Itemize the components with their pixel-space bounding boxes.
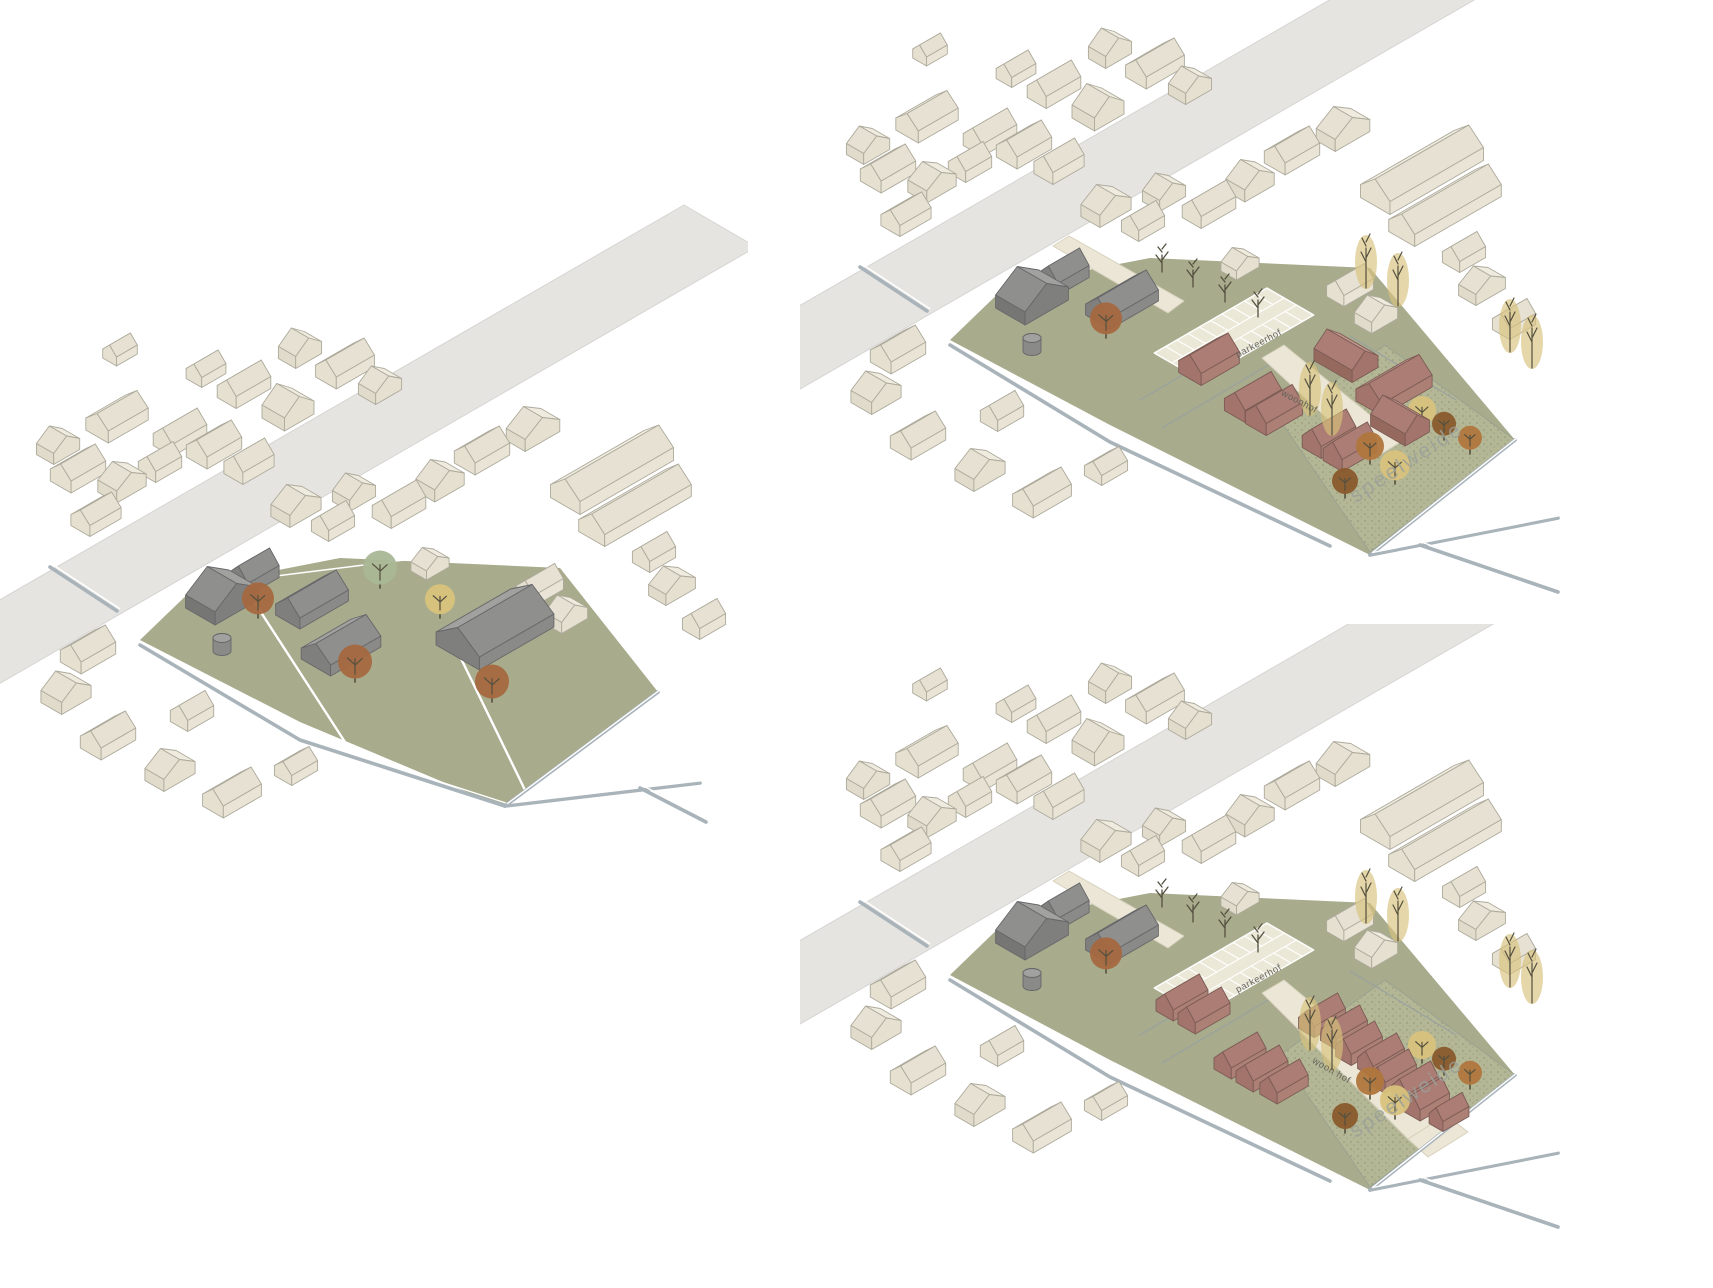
silo [213, 634, 231, 656]
context-building [996, 50, 1036, 88]
context-building [80, 711, 135, 760]
ditch-edge [643, 786, 709, 820]
poplar-tree [1387, 887, 1409, 942]
context-building [1264, 126, 1319, 175]
context-building [1316, 107, 1370, 152]
context-building [881, 192, 931, 237]
context-building [506, 407, 560, 452]
context-building [890, 1046, 945, 1095]
context-building [41, 671, 91, 715]
context-building [372, 480, 426, 529]
poplar-tree [1355, 234, 1377, 289]
context-building [186, 350, 226, 388]
context-building [1013, 467, 1072, 518]
poplar-tree [1387, 252, 1409, 307]
silo-top [1023, 969, 1041, 978]
site-ditch [1420, 1180, 1558, 1227]
site-diagrams: parkeerhofwoonhofspeelweideparkeerhofwoo… [0, 0, 1713, 1288]
context-building [649, 566, 696, 606]
ditch-edge [1423, 543, 1561, 590]
context-building [1084, 1082, 1127, 1121]
site-diagrams-page: parkeerhofwoonhofspeelweideparkeerhofwoo… [0, 0, 1713, 1288]
ditch-edge [1423, 1178, 1561, 1225]
context-building [1316, 742, 1370, 787]
context-building [1182, 180, 1236, 229]
context-building [913, 668, 948, 701]
context-building [1084, 447, 1127, 486]
panel-content: parkeerhofwoon hofspeelweide [664, 540, 1566, 1227]
context-building [881, 827, 931, 872]
context-building [1182, 815, 1236, 864]
context-building [980, 1026, 1023, 1067]
site-ditch [640, 788, 706, 822]
context-building [896, 726, 958, 779]
context-building [203, 767, 262, 818]
panel-content [0, 205, 756, 822]
panel-content: parkeerhofwoonhofspeelweide [664, 0, 1566, 592]
context-building [955, 449, 1005, 492]
context-building [1088, 28, 1131, 69]
silo [1023, 969, 1041, 991]
poplar-tree [1355, 869, 1377, 924]
context-building [278, 328, 321, 369]
context-building [86, 391, 148, 444]
panel-existing-situation [0, 205, 756, 822]
panel-variant-2: parkeerhofwoon hofspeelweide [664, 540, 1566, 1227]
context-building [1013, 1102, 1072, 1153]
context-building [955, 1084, 1005, 1127]
context-building [913, 33, 948, 66]
context-building [170, 691, 213, 732]
context-building [851, 371, 901, 415]
context-building [103, 333, 138, 366]
context-building [1088, 663, 1131, 704]
context-building [890, 411, 945, 460]
context-building [896, 91, 958, 144]
context-building [851, 1006, 901, 1050]
context-building [274, 747, 317, 786]
context-building [71, 492, 121, 537]
context-building [682, 599, 725, 640]
panel-variant-1: parkeerhofwoonhofspeelweide [664, 0, 1566, 592]
context-building [1264, 761, 1319, 810]
context-building [1459, 266, 1506, 306]
context-building [980, 391, 1023, 432]
context-building [145, 749, 195, 792]
site-ditch [1420, 545, 1558, 592]
silo-top [213, 634, 231, 643]
context-building [996, 685, 1036, 723]
context-building [454, 426, 509, 475]
silo [1023, 334, 1041, 356]
silo-top [1023, 334, 1041, 343]
context-building [1459, 901, 1506, 941]
